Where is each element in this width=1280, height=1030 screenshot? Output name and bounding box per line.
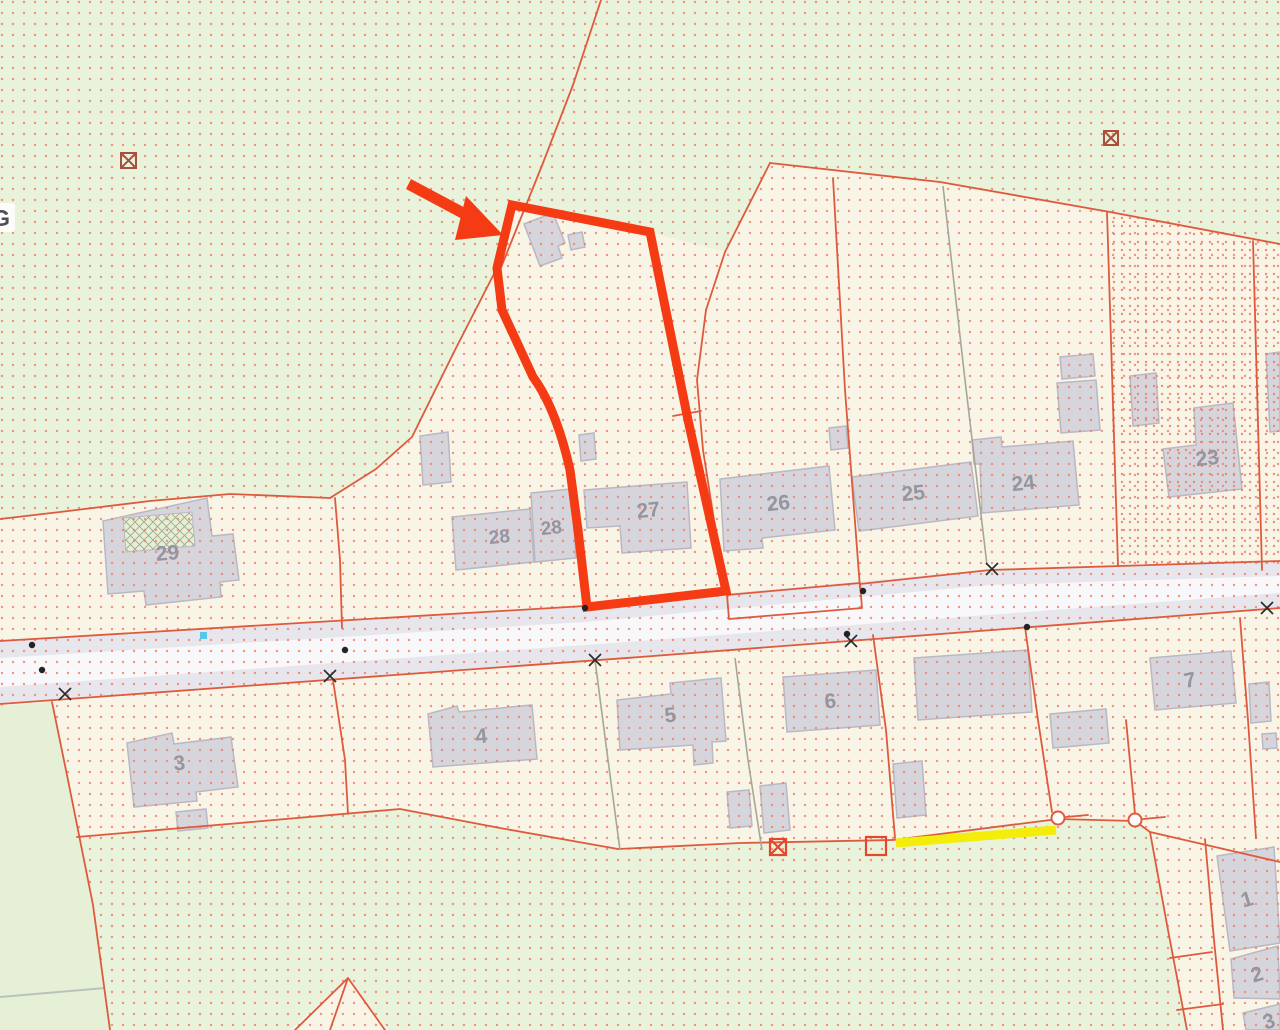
label-parcel-25: 25 (901, 481, 927, 506)
label-parcel-29: 29 (155, 541, 180, 566)
street-name-chip: G (0, 203, 15, 232)
label-parcel-23: 23 (1195, 446, 1221, 471)
circle-marker-1 (1052, 812, 1065, 825)
map-canvas: 29 28 28 27 26 25 24 23 3 4 5 6 7 1 2 3 … (0, 0, 1280, 1030)
label-parcel-27: 27 (636, 498, 662, 523)
cyan-marker (200, 632, 207, 639)
label-parcel-6: 6 (824, 690, 838, 714)
label-parcel-3: 3 (173, 752, 187, 776)
label-parcel-5: 5 (664, 704, 678, 728)
label-parcel-28b: 28 (540, 517, 563, 540)
street-name-text: G (0, 205, 10, 231)
label-parcel-28a: 28 (488, 526, 511, 549)
label-parcel-26: 26 (766, 491, 792, 516)
circle-marker-2 (1129, 814, 1142, 827)
cadastral-map: 29 28 28 27 26 25 24 23 3 4 5 6 7 1 2 3 … (0, 0, 1280, 1030)
label-parcel-24: 24 (1011, 471, 1037, 496)
label-parcel-4: 4 (475, 725, 489, 749)
